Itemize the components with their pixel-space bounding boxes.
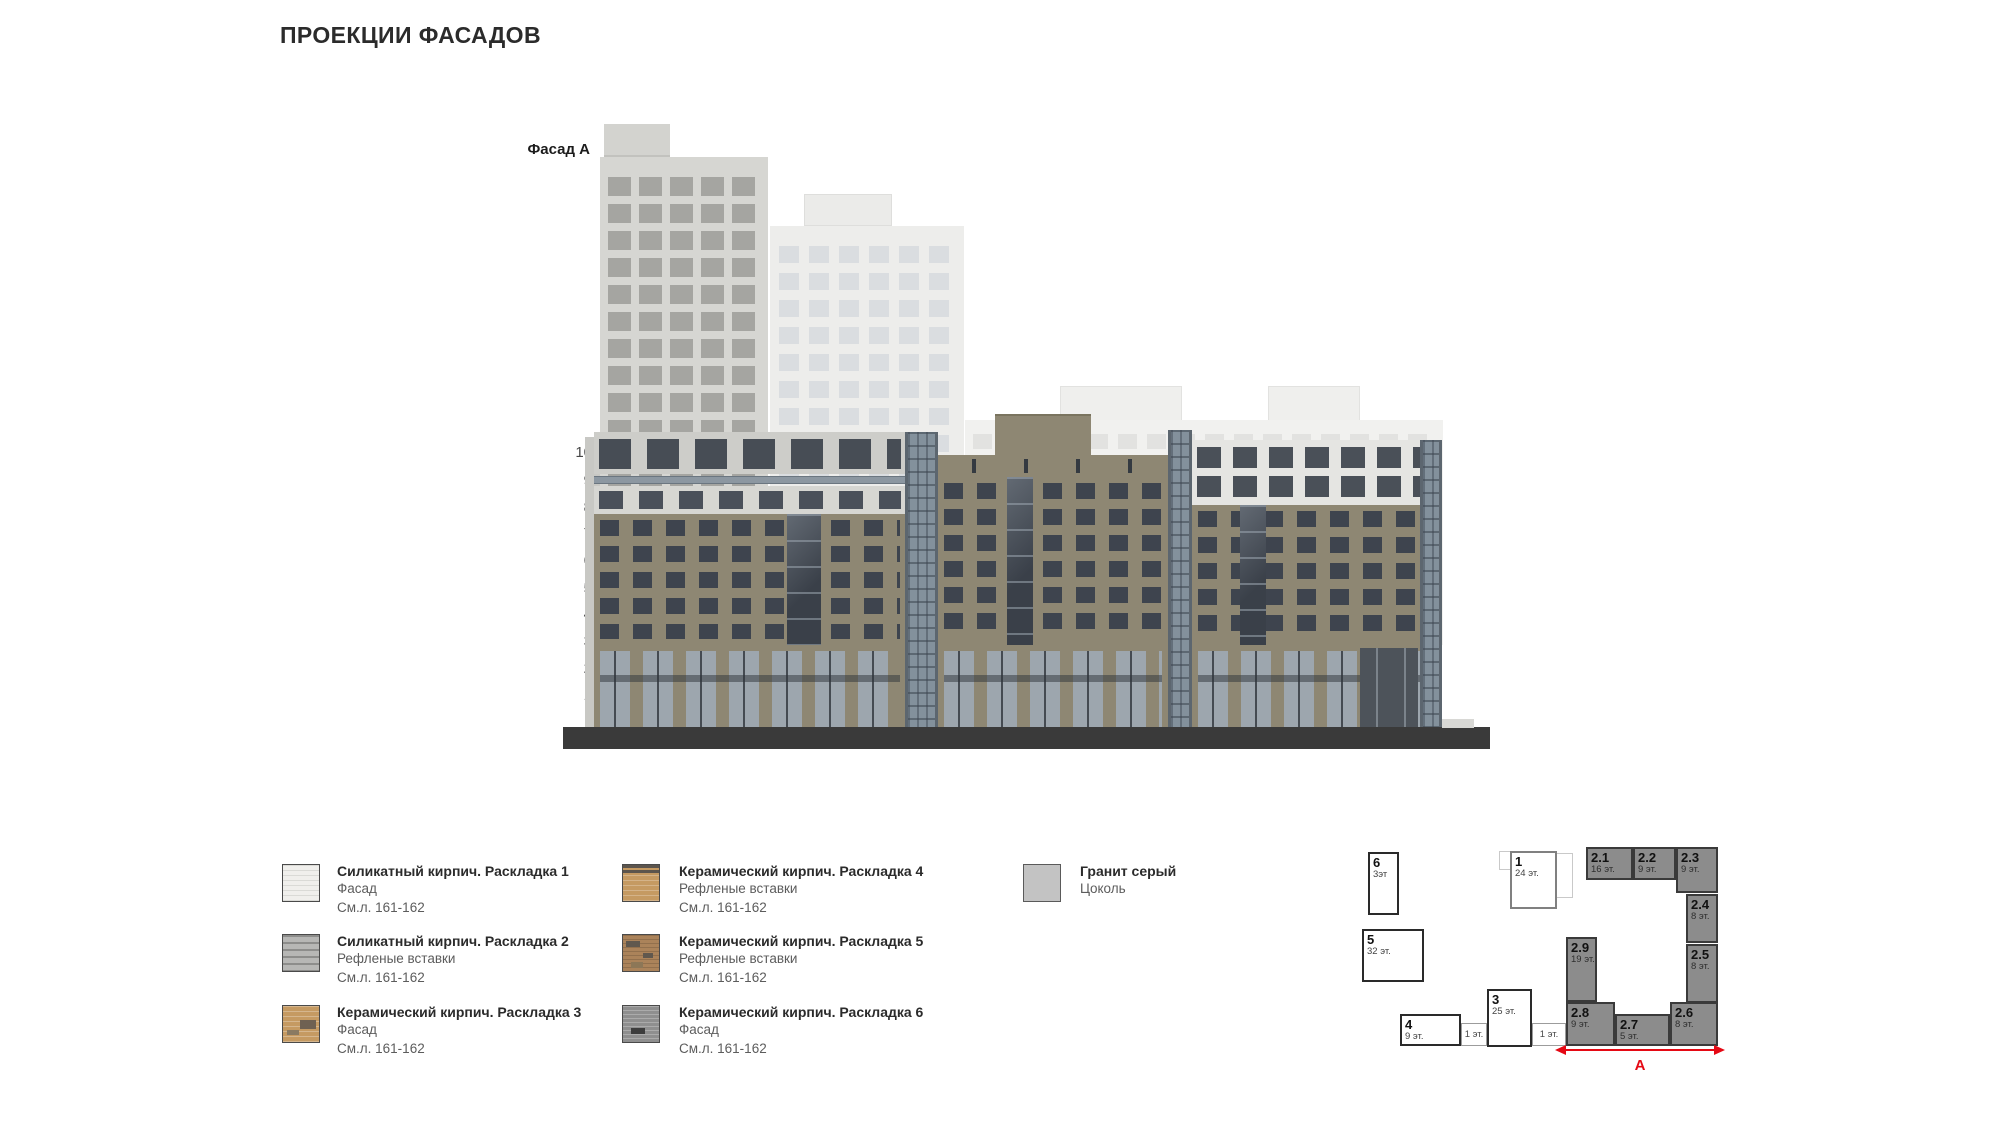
plan-block-2-5: 2.5 8 эт. bbox=[1686, 944, 1718, 1003]
plan-block-2-8: 2.8 9 эт. bbox=[1566, 1002, 1615, 1046]
legend-item: Керамический кирпич. Раскладка 6 Фасад С… bbox=[679, 1003, 979, 1058]
plan-block-number: 4 bbox=[1402, 1016, 1459, 1031]
block-a-balcony-column bbox=[787, 514, 821, 645]
gray-tower-penthouse bbox=[604, 124, 670, 157]
block-c-corner-glazing bbox=[1420, 440, 1442, 729]
site-key-plan: 6 3эт 5 32 эт. 1 24 эт. 4 9 эт. 3 25 эт.… bbox=[1360, 843, 1765, 1098]
legend-item-line: Рефленые вставки bbox=[679, 880, 979, 899]
plan-block-number: 2.7 bbox=[1617, 1016, 1668, 1031]
plan-block-floors: 8 эт. bbox=[1672, 1019, 1716, 1030]
block-c-entrance-portal bbox=[1360, 648, 1418, 727]
block-c-brick-facade bbox=[1192, 505, 1442, 645]
legend-item: Керамический кирпич. Раскладка 4 Рефлены… bbox=[679, 862, 979, 917]
plan-block-number: 5 bbox=[1364, 931, 1422, 946]
plan-low-block-2: 1 эт. bbox=[1532, 1023, 1566, 1046]
plan-block-floors: 9 эт. bbox=[1635, 864, 1674, 875]
legend-item-line: См.л. 161-162 bbox=[679, 969, 979, 988]
plan-block-2-2: 2.2 9 эт. bbox=[1633, 847, 1676, 880]
plan-block-number: 2.9 bbox=[1568, 939, 1595, 954]
legend-item: Керамический кирпич. Раскладка 3 Фасад С… bbox=[337, 1003, 637, 1058]
legend-item-title: Керамический кирпич. Раскладка 6 bbox=[679, 1003, 979, 1021]
legend-item-line: См.л. 161-162 bbox=[337, 969, 637, 988]
plan-block-2-7: 2.7 5 эт. bbox=[1615, 1014, 1670, 1046]
plan-block-2-6: 2.6 8 эт. bbox=[1670, 1002, 1718, 1046]
plan-block-number: 2.1 bbox=[1588, 849, 1631, 864]
block-a-second-band bbox=[594, 486, 906, 514]
plan-block-floors: 25 эт. bbox=[1489, 1006, 1530, 1017]
building-base-plinth bbox=[563, 727, 1490, 749]
block-b-roof-penthouse bbox=[995, 414, 1091, 456]
plan-block-floors: 8 эт. bbox=[1688, 911, 1716, 922]
plan-block-floors: 19 эт. bbox=[1568, 954, 1595, 965]
plan-block-floors: 32 эт. bbox=[1364, 946, 1422, 957]
legend-item-line: Рефленые вставки bbox=[337, 950, 637, 969]
white-tower-penthouse bbox=[804, 194, 892, 226]
legend-item-line: Рефленые вставки bbox=[679, 950, 979, 969]
page-title: ПРОЕКЦИИ ФАСАДОВ bbox=[280, 22, 541, 49]
legend-item-line: См.л. 161-162 bbox=[337, 899, 637, 918]
legend-item-title: Керамический кирпич. Раскладка 4 bbox=[679, 862, 979, 880]
plan-block-2-3: 2.3 9 эт. bbox=[1676, 847, 1718, 893]
legend-item: Гранит серый Цоколь bbox=[1080, 862, 1380, 899]
plan-block-floors: 3эт bbox=[1370, 869, 1397, 880]
plan-block-1: 1 24 эт. bbox=[1510, 851, 1557, 909]
legend-item-line: См.л. 161-162 bbox=[337, 1040, 637, 1059]
block-c-balcony-column bbox=[1240, 505, 1266, 645]
block-b-attic-strip bbox=[938, 455, 1168, 477]
swatch-ceramic-brick-5 bbox=[622, 934, 660, 972]
dimension-line-a bbox=[1557, 1049, 1723, 1051]
plan-block-2-9: 2.9 19 эт. bbox=[1566, 937, 1597, 1002]
plan-block-5: 5 32 эт. bbox=[1362, 929, 1424, 982]
block-b-balcony-column bbox=[1007, 477, 1033, 645]
plan-block-number: 2.5 bbox=[1688, 946, 1716, 961]
plan-block-floors: 8 эт. bbox=[1688, 961, 1716, 972]
swatch-ceramic-brick-3 bbox=[282, 1005, 320, 1043]
plan-block-floors: 5 эт. bbox=[1617, 1031, 1668, 1042]
plan-block-number: 3 bbox=[1489, 991, 1530, 1006]
legend-item-line: Фасад bbox=[679, 1021, 979, 1040]
plan-block-2-1: 2.1 16 эт. bbox=[1586, 847, 1633, 880]
block-a-brick-facade bbox=[594, 514, 906, 645]
plan-block-floors: 16 эт. bbox=[1588, 864, 1631, 875]
legend-item-title: Гранит серый bbox=[1080, 862, 1380, 880]
swatch-silicate-brick-1 bbox=[282, 864, 320, 902]
plan-block-number: 6 bbox=[1370, 854, 1397, 869]
glazed-stair-tower-right bbox=[1168, 430, 1192, 729]
plan-low-block-1: 1 эт. bbox=[1461, 1023, 1487, 1046]
plan-block-number: 1 bbox=[1512, 853, 1555, 868]
legend-item: Силикатный кирпич. Раскладка 1 Фасад См.… bbox=[337, 862, 637, 917]
plan-block-number: 2.3 bbox=[1678, 849, 1716, 864]
legend-item-line: Цоколь bbox=[1080, 880, 1380, 899]
legend-item-title: Силикатный кирпич. Раскладка 2 bbox=[337, 932, 637, 950]
plan-block-floors: 9 эт. bbox=[1678, 864, 1716, 875]
legend-item-title: Керамический кирпич. Раскладка 3 bbox=[337, 1003, 637, 1021]
swatch-silicate-brick-2 bbox=[282, 934, 320, 972]
plan-block-4: 4 9 эт. bbox=[1400, 1014, 1461, 1046]
glazed-stair-tower-left bbox=[905, 432, 938, 729]
swatch-ceramic-brick-4 bbox=[622, 864, 660, 902]
plan-block-number: 2.6 bbox=[1672, 1004, 1716, 1019]
block-c-white-band bbox=[1192, 440, 1442, 505]
plan-block-6: 6 3эт bbox=[1368, 852, 1399, 915]
legend-item-line: См.л. 161-162 bbox=[679, 1040, 979, 1059]
plan-block-floors: 24 эт. bbox=[1512, 868, 1555, 879]
plan-block-number: 2.8 bbox=[1568, 1004, 1613, 1019]
block-a-upper-band bbox=[594, 432, 906, 474]
plan-low-block-label: 1 эт. bbox=[1540, 1029, 1559, 1040]
legend-item: Силикатный кирпич. Раскладка 2 Рефленые … bbox=[337, 932, 637, 987]
swatch-granite-gray bbox=[1023, 864, 1061, 902]
base-right-step bbox=[1442, 719, 1474, 728]
legend-item-title: Керамический кирпич. Раскладка 5 bbox=[679, 932, 979, 950]
dimension-label-a: А bbox=[1557, 1057, 1723, 1074]
plan-block-1-outline-right bbox=[1556, 853, 1573, 898]
plan-block-number: 2.2 bbox=[1635, 849, 1674, 864]
block-b-storefronts bbox=[938, 645, 1168, 729]
legend-item-line: Фасад bbox=[337, 880, 637, 899]
legend-item-line: Фасад bbox=[337, 1021, 637, 1040]
legend-item: Керамический кирпич. Раскладка 5 Рефлены… bbox=[679, 932, 979, 987]
legend-item-title: Силикатный кирпич. Раскладка 1 bbox=[337, 862, 637, 880]
block-b-brick-facade bbox=[938, 477, 1168, 645]
plan-low-block-label: 1 эт. bbox=[1465, 1029, 1484, 1040]
plan-block-number: 2.4 bbox=[1688, 896, 1716, 911]
legend-item-line: См.л. 161-162 bbox=[679, 899, 979, 918]
plan-block-floors: 9 эт. bbox=[1568, 1019, 1613, 1030]
facade-projections-sheet: ПРОЕКЦИИ ФАСАДОВ Фасад А 10 9 8 7 6 5 4 … bbox=[0, 0, 1996, 1123]
plan-block-2-4: 2.4 8 эт. bbox=[1686, 894, 1718, 943]
plan-block-floors: 9 эт. bbox=[1402, 1031, 1459, 1042]
facade-a-label: Фасад А bbox=[505, 141, 590, 158]
plan-block-3: 3 25 эт. bbox=[1487, 989, 1532, 1047]
block-a-storefronts bbox=[594, 645, 906, 729]
block-a-cornice bbox=[594, 476, 906, 484]
swatch-ceramic-brick-6 bbox=[622, 1005, 660, 1043]
